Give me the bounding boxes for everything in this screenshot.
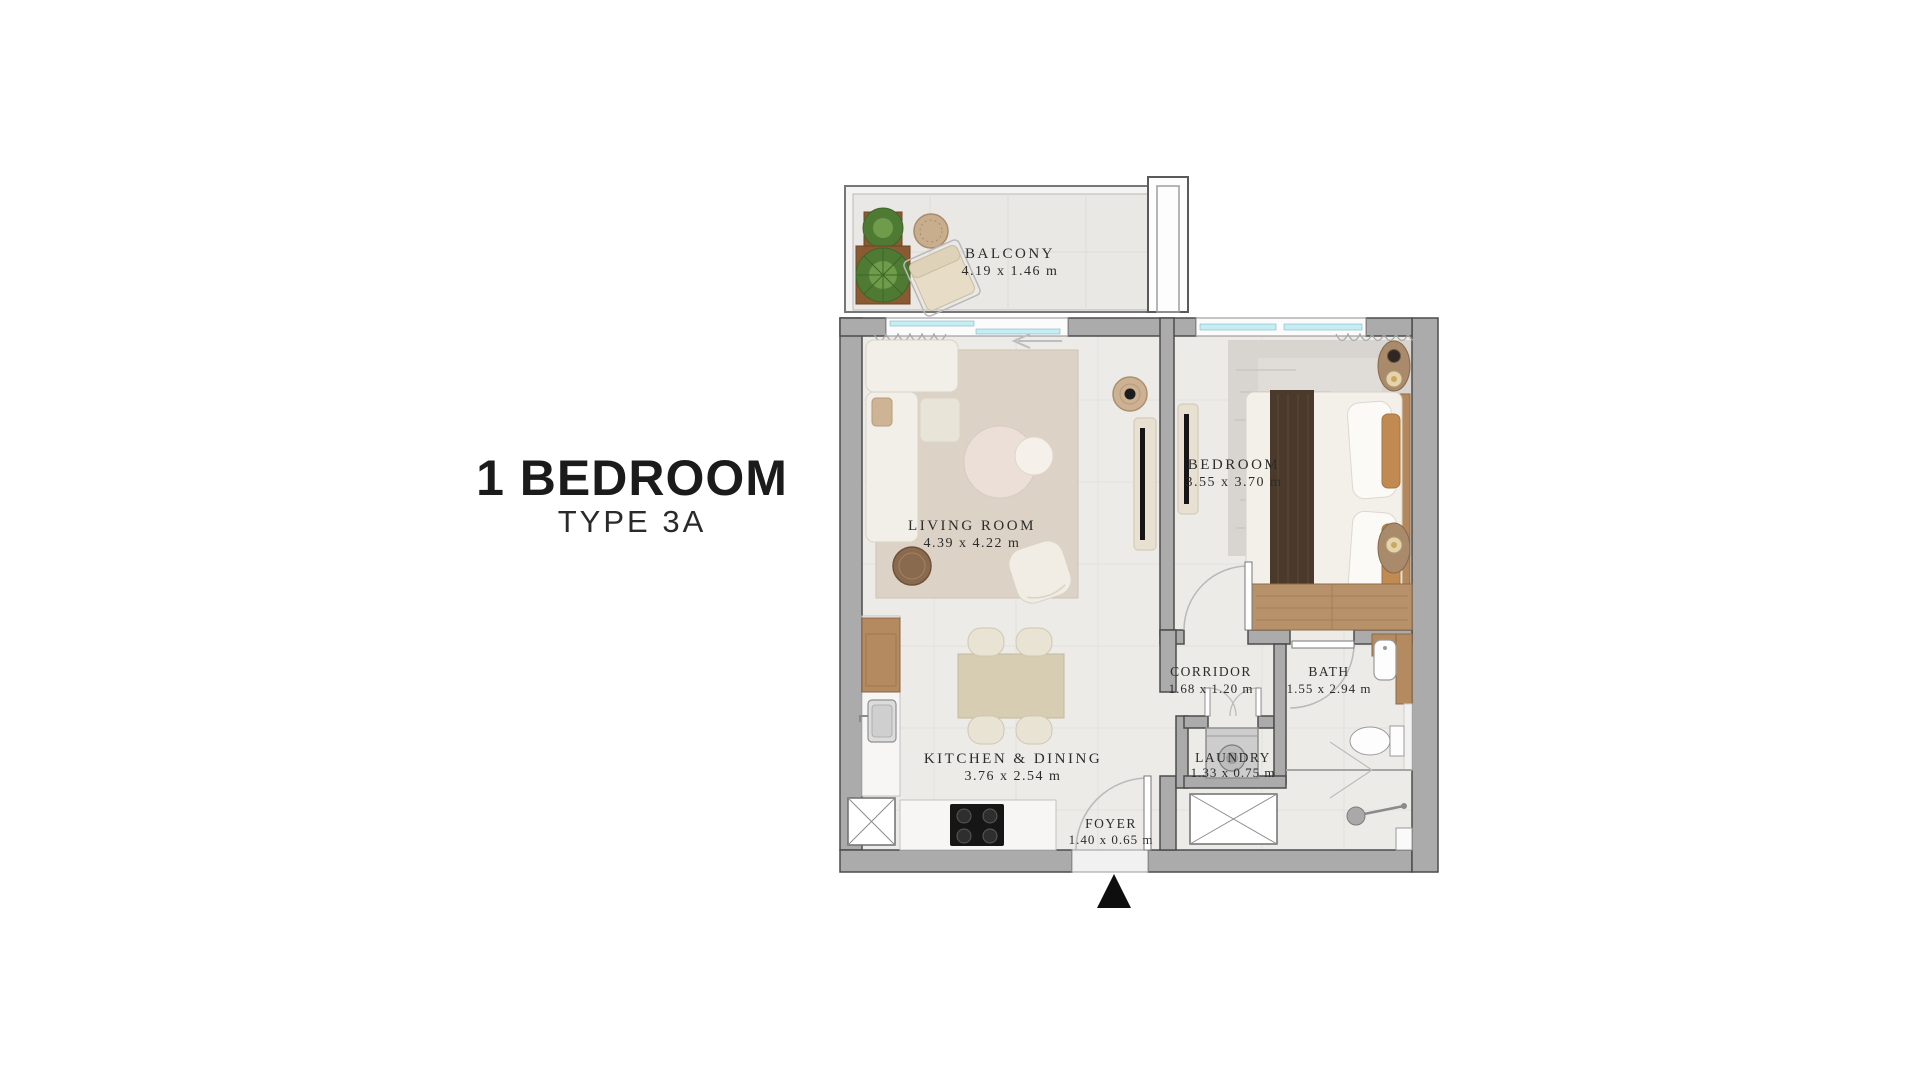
label-kitchen-dining: KITCHEN & DINING [924,751,1102,767]
toilet-bowl [1350,727,1390,755]
dining-table [958,654,1064,718]
wall-laundry-top-b [1258,716,1274,728]
dims-kitchen-dining: 3.76 x 2.54 m [965,769,1062,784]
laundry-door-leaf-right [1256,688,1261,716]
sofa-ottoman [920,398,960,442]
bed-cushion-top [1382,414,1400,488]
pouf-center [1125,389,1136,400]
dims-foyer: 1.40 x 0.65 m [1069,832,1154,847]
dims-laundry: 1.33 x 0.75 m [1191,765,1276,780]
bath-marble-ledge [1404,704,1412,770]
plant-small-center [873,218,893,238]
label-laundry: LAUNDRY [1195,750,1271,765]
stove-burner-3 [957,829,971,843]
wall-left [840,318,862,850]
stove-burner-4 [983,829,997,843]
balcony-round-table [914,214,948,248]
bedroom-door-leaf [1245,562,1252,630]
sofa-throw-pillow [872,398,892,426]
shower-head [1347,807,1365,825]
label-corridor: CORRIDOR [1170,664,1252,679]
wall-top-right [1366,318,1412,336]
wall-mid-b [1248,630,1290,644]
floorplan-page: 1 BEDROOM TYPE 3A [0,0,1920,1080]
plant-fronds [856,248,910,302]
coffee-table-small [1015,437,1053,475]
label-foyer: FOYER [1085,816,1137,831]
dining-chair-2 [1016,628,1052,656]
dims-bath: 1.55 x 2.94 m [1287,681,1372,696]
dims-corridor: 1.68 x 1.20 m [1169,681,1254,696]
bath-door-leaf [1292,641,1354,648]
bedroom-window-glass-1 [1200,324,1276,330]
nightstand-bottom-lamp-dot [1391,542,1397,548]
label-bath: BATH [1308,664,1349,679]
living-sliding-door-glass-2 [976,329,1060,334]
floorplan-drawing: BALCONY 4.19 x 1.46 m LIVING ROOM 4.39 x… [0,0,1920,1080]
entrance-threshold [1072,850,1148,872]
dining-chair-1 [968,628,1004,656]
wall-top-left [840,318,886,336]
kitchen-wood-board [862,618,900,692]
stove-burner-1 [957,809,971,823]
wall-right [1412,318,1438,872]
north-arrow-icon [1097,874,1131,908]
label-bedroom: BEDROOM [1188,457,1281,473]
bath-sink-faucet [1383,646,1387,650]
shower-valve [1401,803,1407,809]
wall-laundry-bath-divider [1274,644,1286,784]
nightstand-top-lamp2-dot [1391,376,1397,382]
wall-top-middle [1068,318,1196,336]
bath-vanity-side [1396,634,1412,704]
dining-chair-3 [968,716,1004,744]
dining-chair-4 [1016,716,1052,744]
sofa-top [866,340,958,392]
dims-balcony: 4.19 x 1.46 m [962,264,1059,279]
label-living-room: LIVING ROOM [908,518,1036,534]
toilet-tank [1390,726,1404,756]
tv-living [1140,428,1145,540]
bedroom-window-glass-2 [1284,324,1362,330]
wall-laundry-top-a [1184,716,1208,728]
wall-living-bedroom-divider [1160,318,1174,636]
kitchen-sink-basin [872,705,892,737]
label-balcony: BALCONY [965,246,1055,262]
wall-bottom-right [1148,850,1412,872]
living-sliding-door-glass-1 [890,321,974,326]
wall-bottom-left [840,850,1072,872]
dims-living-room: 4.39 x 4.22 m [924,536,1021,551]
stove-burner-2 [983,809,997,823]
wall-foyer-right [1160,776,1176,850]
dims-bedroom: 3.55 x 3.70 m [1186,475,1283,490]
shower-step [1396,828,1412,850]
balcony-column [1148,177,1188,312]
nightstand-top-lamp [1388,350,1401,363]
